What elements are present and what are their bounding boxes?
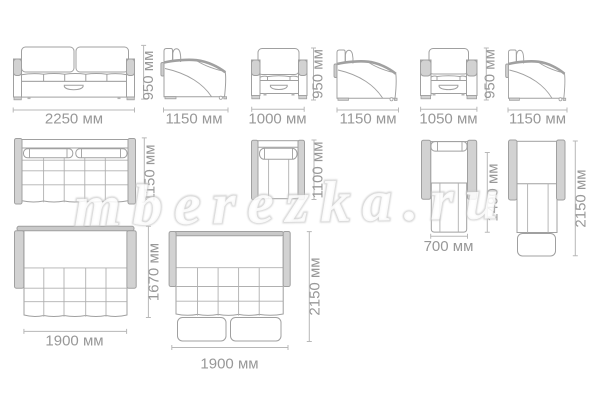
svg-text:1150 мм: 1150 мм [339,111,396,128]
svg-text:1900 мм: 1900 мм [45,333,103,350]
svg-text:mberezka.ru: mberezka.ru [73,166,510,239]
svg-text:950 мм: 950 мм [482,49,499,99]
svg-text:700 мм: 700 мм [424,238,474,255]
svg-text:1050 мм: 1050 мм [419,111,477,128]
svg-text:1670 мм: 1670 мм [146,243,163,301]
svg-text:950 мм: 950 мм [140,51,157,101]
svg-text:1150 мм: 1150 мм [509,111,566,128]
svg-text:2150 мм: 2150 мм [573,169,590,227]
svg-text:1900 мм: 1900 мм [200,356,258,373]
svg-text:2250 мм: 2250 мм [45,111,103,128]
svg-text:1000 мм: 1000 мм [248,111,306,128]
svg-text:950 мм: 950 мм [310,49,327,99]
svg-text:2150 мм: 2150 мм [307,257,324,315]
svg-text:1150 мм: 1150 мм [165,111,222,128]
